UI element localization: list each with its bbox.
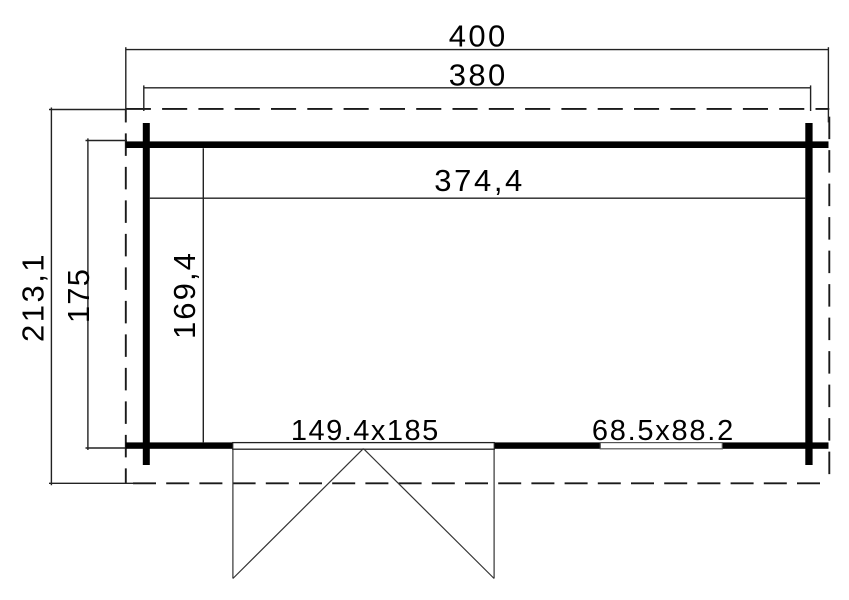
- svg-text:169,4: 169,4: [167, 251, 202, 339]
- svg-text:374,4: 374,4: [434, 163, 525, 198]
- svg-text:149.4x185: 149.4x185: [291, 415, 440, 447]
- svg-text:213,1: 213,1: [16, 252, 51, 342]
- svg-text:400: 400: [449, 19, 508, 54]
- svg-text:175: 175: [61, 268, 96, 323]
- svg-text:68.5x88.2: 68.5x88.2: [592, 415, 735, 447]
- svg-text:380: 380: [449, 58, 508, 93]
